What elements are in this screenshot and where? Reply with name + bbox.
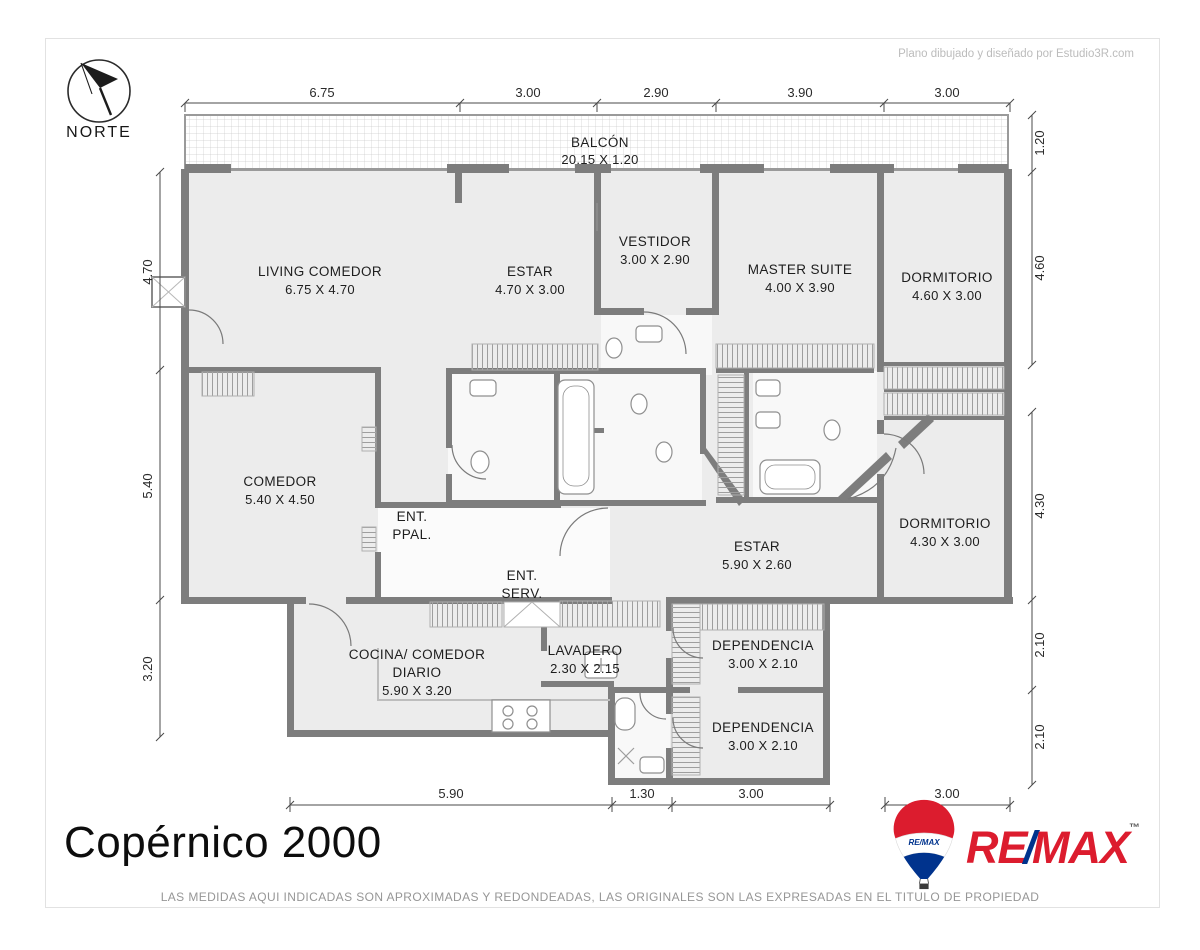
room-label-estar-2: ESTAR [734,539,780,554]
toilet-icon [631,394,647,414]
room-dims-dormitorio-1: 4.60 X 3.00 [912,288,982,303]
balloon-wordmark: RE/MAX [900,838,948,847]
dim-right-4: 2.10 [1032,632,1047,657]
room-dims-living-comedor: 6.75 X 4.70 [285,282,355,297]
toilet-icon [824,420,840,440]
room-label-dormitorio-1: DORMITORIO [901,270,993,285]
dim-top-1: 6.75 [309,85,334,100]
north-label: NORTE [66,124,132,141]
room-dims-cocina: 5.90 X 3.20 [382,683,452,698]
room-label-estar: ESTAR [507,264,553,279]
room-label-comedor: COMEDOR [243,474,316,489]
dim-left-3: 3.20 [140,656,155,681]
dim-top-2: 3.00 [515,85,540,100]
dim-left-1: 4.70 [140,259,155,284]
dim-top-5: 3.00 [934,85,959,100]
sink-icon [470,380,496,396]
room-label-lavadero: LAVADERO [548,643,623,658]
sink-icon [640,757,664,773]
room-label-ent-ppal-1: ENT. [397,509,428,524]
disclaimer-text: LAS MEDIDAS AQUI INDICADAS SON APROXIMAD… [0,890,1200,904]
service-door-x-box [504,602,560,627]
room-label-cocina-1: COCINA/ COMEDOR [349,647,486,662]
dim-right-5: 2.10 [1032,724,1047,749]
left-wall-vent-box [152,277,185,307]
bidet-icon [656,442,672,462]
remax-logo: RE/MAX RE/MAX™ [884,798,1154,888]
room-dims-master-suite: 4.00 X 3.90 [765,280,835,295]
wordmark-re: RE [966,822,1027,873]
room-dims-dependencia-1: 3.00 X 2.10 [728,656,798,671]
dim-right-1: 1.20 [1032,130,1047,155]
water-heater-icon [615,698,635,730]
room-label-dependencia-2: DEPENDENCIA [712,720,814,735]
dim-bottom-2: 1.30 [629,786,654,801]
room-label-dependencia-1: DEPENDENCIA [712,638,814,653]
floor-plan-page: Plano dibujado y diseñado por Estudio3R.… [0,0,1200,950]
room-dims-dormitorio-2: 4.30 X 3.00 [910,534,980,549]
room-dims-lavadero: 2.30 X 2.15 [550,661,620,676]
room-label-vestidor: VESTIDOR [619,234,691,249]
dim-right-3: 4.30 [1032,493,1047,518]
wordmark-tm: ™ [1129,822,1139,834]
room-label-ent-serv-1: ENT. [507,568,538,583]
toilet-icon [606,338,622,358]
room-label-living-comedor: LIVING COMEDOR [258,264,382,279]
remax-wordmark: RE/MAX™ [966,822,1139,874]
room-label-dormitorio-2: DORMITORIO [899,516,991,531]
dim-right-2: 4.60 [1032,255,1047,280]
dim-top-4: 3.90 [787,85,812,100]
dim-top-3: 2.90 [643,85,668,100]
stove-icon [492,700,550,732]
sink-icon [636,326,662,342]
room-label-cocina-2: DIARIO [393,665,442,680]
room-dims-estar-2: 5.90 X 2.60 [722,557,792,572]
room-dims-estar: 4.70 X 3.00 [495,282,565,297]
room-label-master-suite: MASTER SUITE [748,262,853,277]
sink-icon [756,380,780,396]
room-dims-comedor: 5.40 X 4.50 [245,492,315,507]
room-label-ent-serv-2: SERV. [501,586,542,601]
dim-left-2: 5.40 [140,473,155,498]
sink-icon [756,412,780,428]
north-compass-icon [68,60,130,122]
room-dims-balcon: 20.15 X 1.20 [561,152,638,167]
room-label-balcon: BALCÓN [571,135,629,150]
wordmark-max: MAX [1032,822,1129,873]
room-label-ent-ppal-2: PPAL. [392,527,431,542]
toilet-icon [471,451,489,473]
balloon-basket [919,884,928,890]
room-dims-vestidor: 3.00 X 2.90 [620,252,690,267]
page-title: Copérnico 2000 [64,818,382,868]
room-dims-dependencia-2: 3.00 X 2.10 [728,738,798,753]
dim-bottom-3: 3.00 [738,786,763,801]
dim-bottom-1: 5.90 [438,786,463,801]
